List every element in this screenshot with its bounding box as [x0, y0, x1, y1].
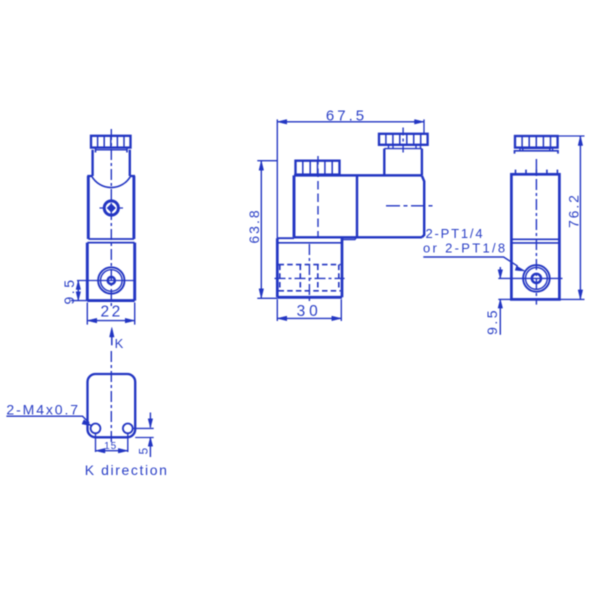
svg-text:or 2-PT1/8: or 2-PT1/8 — [423, 241, 507, 256]
svg-text:30: 30 — [297, 303, 322, 320]
svg-text:9.5: 9.5 — [484, 308, 500, 335]
svg-text:9.5: 9.5 — [61, 278, 77, 305]
svg-text:2-M4x0.7: 2-M4x0.7 — [6, 402, 80, 418]
svg-text:15: 15 — [104, 441, 117, 452]
svg-text:76.2: 76.2 — [566, 193, 582, 228]
svg-text:5: 5 — [137, 448, 151, 455]
svg-text:K direction: K direction — [85, 462, 169, 478]
svg-text:67.5: 67.5 — [326, 108, 367, 125]
svg-text:2-PT1/4: 2-PT1/4 — [426, 226, 485, 241]
svg-text:22: 22 — [100, 304, 122, 321]
svg-text:63.8: 63.8 — [246, 208, 262, 243]
svg-text:K: K — [115, 336, 124, 351]
